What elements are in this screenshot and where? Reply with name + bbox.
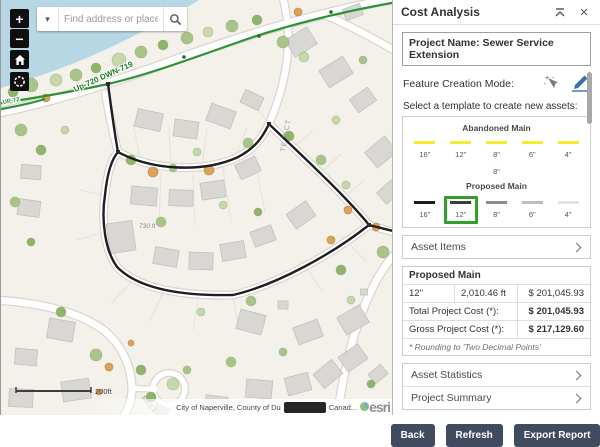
export-report-button[interactable]: Export Report <box>514 424 600 447</box>
template-abandoned-16[interactable]: 16" <box>408 138 442 162</box>
abandoned-main-row: 16" 12" 8" 6" <box>403 138 590 162</box>
chevron-down-icon: ▾ <box>45 14 50 25</box>
line-swatch <box>558 201 579 204</box>
building-footprint <box>245 379 272 399</box>
tree <box>181 32 193 44</box>
attribution-text-right: Canad... <box>329 403 357 412</box>
zoom-out-button[interactable]: − <box>10 29 29 48</box>
cell-length: 2,010.46 ft <box>455 285 518 302</box>
home-button[interactable] <box>10 50 29 69</box>
search-input[interactable] <box>59 7 163 31</box>
tree <box>90 349 102 361</box>
line-swatch <box>522 201 543 204</box>
line-swatch <box>414 201 435 204</box>
asset-statistics-accordion[interactable]: Asset Statistics <box>403 364 590 386</box>
search-icon <box>169 13 182 26</box>
tree <box>347 296 355 304</box>
line-swatch <box>450 201 471 204</box>
building-footprint <box>173 119 199 139</box>
collapse-panel-button[interactable] <box>552 4 568 20</box>
tree <box>167 378 179 390</box>
trace-node <box>106 82 110 86</box>
tree <box>336 265 346 275</box>
building-footprint <box>14 348 37 366</box>
tree <box>254 208 262 216</box>
template-abandoned-8[interactable]: 8" <box>479 138 513 162</box>
search-box: ▾ <box>37 7 187 31</box>
trace-node <box>367 223 371 227</box>
gross-project-cost-row: Gross Project Cost (*): $ 217,129.60 <box>403 321 590 339</box>
attribution-text-left: City of Naperville, County of Du <box>176 403 281 412</box>
project-summary-accordion[interactable]: Project Summary <box>403 386 590 409</box>
manhole <box>257 34 261 38</box>
rounding-note: * Rounding to 'Two Decimal Points' <box>403 339 590 355</box>
tree <box>50 74 62 86</box>
building-footprint <box>46 318 75 342</box>
collapse-icon <box>554 7 566 18</box>
tree <box>342 181 350 189</box>
cell-size: 12" <box>403 285 455 302</box>
flow-trace-mode-button[interactable] <box>543 74 561 95</box>
tree <box>70 69 82 81</box>
feature-creation-mode-label: Feature Creation Mode: <box>403 78 534 90</box>
manhole <box>329 10 333 14</box>
template-abandoned-12[interactable]: 12" <box>444 138 478 162</box>
cost-table-header: Proposed Main <box>403 267 590 285</box>
template-abandoned-8b[interactable]: 8" <box>480 160 514 179</box>
refresh-button[interactable]: Refresh <box>446 424 503 447</box>
group-title-proposed-valves: Proposed Valves <box>403 226 590 228</box>
tree <box>377 246 389 258</box>
map-canvas[interactable]: Up-720 DWN-719UP-72TE 2 CTMIST730 ft200f… <box>0 0 392 415</box>
template-proposed-16[interactable]: 16" <box>408 198 442 222</box>
project-name: Project Name: Sewer Service Extension <box>402 32 591 66</box>
table-row: 12" 2,010.46 ft $ 201,045.93 <box>403 285 590 303</box>
search-source-dropdown[interactable]: ▾ <box>37 7 59 31</box>
attribution-widget[interactable] <box>284 402 326 413</box>
orange-tree <box>327 236 335 244</box>
orange-tree <box>105 363 113 371</box>
esri-globe-icon <box>360 402 369 411</box>
accordion-group: Asset Statistics Project Summary <box>402 363 591 410</box>
tree <box>332 116 340 124</box>
building-footprint <box>361 289 368 295</box>
group-title-proposed-main: Proposed Main <box>403 181 590 191</box>
asset-items-accordion[interactable]: Asset Items <box>402 235 591 259</box>
tree <box>359 56 367 64</box>
panel-title: Cost Analysis <box>401 5 544 19</box>
group-title-abandoned-main: Abandoned Main <box>403 123 590 133</box>
template-proposed-12-selected[interactable]: 12" <box>444 196 478 224</box>
tree <box>27 238 35 246</box>
back-button[interactable]: Back <box>391 424 435 447</box>
orange-tree <box>294 8 302 16</box>
building-footprint <box>189 252 214 270</box>
template-picker: Abandoned Main 16" 12" 8" <box>402 116 591 228</box>
tree <box>158 40 168 50</box>
esri-logo: esri <box>359 401 390 413</box>
trace-node <box>267 122 271 126</box>
search-submit-button[interactable] <box>163 7 187 31</box>
proposed-main-row: 16" 12" 8" 6" <box>403 196 590 224</box>
scale-bar-label: 200ft <box>95 387 113 396</box>
zoom-in-button[interactable]: + <box>10 9 29 28</box>
tree <box>203 27 213 37</box>
tree <box>91 63 101 73</box>
abandoned-main-extra-row: 8" <box>403 160 590 179</box>
panel-action-buttons: Back Refresh Export Report <box>402 424 591 447</box>
template-proposed-8[interactable]: 8" <box>479 198 513 222</box>
tree <box>299 52 309 62</box>
orange-tree <box>344 206 352 214</box>
cell-cost: $ 201,045.93 <box>518 285 590 302</box>
line-swatch <box>522 141 543 144</box>
building-footprint <box>21 164 42 179</box>
tree <box>279 348 287 356</box>
tree <box>226 20 238 32</box>
chevron-right-icon <box>572 370 582 380</box>
tree <box>193 148 201 156</box>
orange-tree <box>128 340 134 346</box>
locate-button[interactable] <box>10 72 29 91</box>
building-footprint <box>200 180 226 200</box>
building-footprint <box>130 186 157 206</box>
map-attribution: City of Naperville, County of Du Canad..… <box>1 399 392 415</box>
line-swatch <box>486 163 507 165</box>
tree <box>61 126 69 134</box>
chevron-right-icon <box>572 393 582 403</box>
close-panel-button[interactable]: ✕ <box>576 4 592 20</box>
building-footprint <box>220 241 247 262</box>
tree <box>136 365 146 375</box>
tree <box>36 145 46 155</box>
feature-creation-mode-row: Feature Creation Mode: <box>403 73 590 95</box>
template-abandoned-6[interactable]: 6" <box>515 138 549 162</box>
panel-body: Project Name: Sewer Service Extension Fe… <box>393 25 600 447</box>
template-abandoned-4[interactable]: 4" <box>551 138 585 162</box>
total-project-cost-row: Total Project Cost (*): $ 201,045.93 <box>403 303 590 321</box>
line-swatch <box>558 141 579 144</box>
tree <box>183 366 191 374</box>
building-footprint <box>278 301 288 309</box>
tree <box>10 197 20 207</box>
building-footprint <box>17 199 41 218</box>
line-swatch <box>486 201 507 204</box>
trace-node <box>116 150 120 154</box>
building-footprint <box>169 190 194 207</box>
tree <box>246 296 256 306</box>
template-section-label: Select a template to create new assets: <box>403 101 590 112</box>
template-proposed-4[interactable]: 4" <box>551 198 585 222</box>
building-footprint <box>153 247 180 268</box>
locate-icon <box>13 75 26 88</box>
tree <box>316 155 326 165</box>
tree <box>219 201 227 209</box>
cost-analysis-panel: Cost Analysis ✕ Project Name: Sewer Serv… <box>392 0 600 415</box>
template-proposed-6[interactable]: 6" <box>515 198 549 222</box>
tree <box>156 217 166 227</box>
line-swatch <box>414 141 435 144</box>
tree <box>367 380 375 388</box>
app-window: Up-720 DWN-719UP-72TE 2 CTMIST730 ft200f… <box>0 0 600 415</box>
map-graphics: Up-720 DWN-719UP-72TE 2 CTMIST730 ft200f… <box>1 0 392 415</box>
building-footprint <box>106 220 136 253</box>
chevron-right-icon <box>572 242 582 252</box>
orange-tree <box>148 167 158 177</box>
tree <box>15 124 27 136</box>
line-swatch <box>450 141 471 144</box>
tree <box>277 36 289 48</box>
magic-wand-cursor-icon <box>543 74 561 92</box>
panel-header: Cost Analysis ✕ <box>393 0 600 25</box>
tree <box>135 46 147 58</box>
tree <box>252 15 262 25</box>
home-icon <box>14 54 26 66</box>
map-label: 730 ft <box>139 223 156 230</box>
tree <box>197 308 205 316</box>
tree <box>226 357 236 367</box>
tree <box>56 307 66 317</box>
line-swatch <box>486 141 507 144</box>
manhole <box>182 55 186 59</box>
cost-summary-table: Proposed Main 12" 2,010.46 ft $ 201,045.… <box>402 266 591 356</box>
panel-scrollbar-thumb[interactable] <box>587 72 592 124</box>
